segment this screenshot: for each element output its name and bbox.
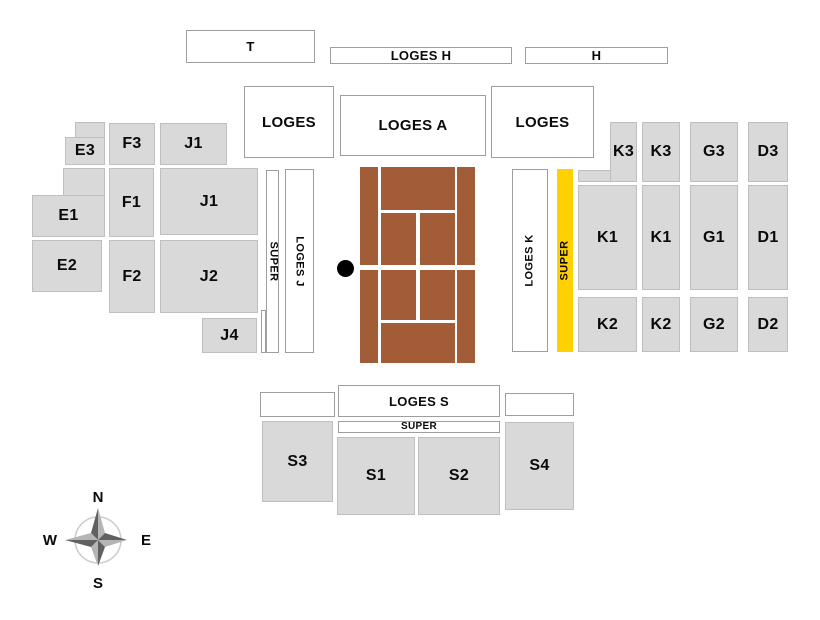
section-label: E3 xyxy=(75,143,95,159)
section-label: T xyxy=(246,40,254,53)
section-label: S2 xyxy=(449,468,469,484)
section-d3[interactable]: D3 xyxy=(748,122,788,182)
section-t[interactable]: T xyxy=(186,30,315,63)
section-j4[interactable]: J4 xyxy=(202,318,257,353)
section-e1[interactable] xyxy=(63,168,105,196)
section-label: LOGES xyxy=(515,115,569,130)
compass-east-label: E xyxy=(141,532,151,549)
stadium-seating-map: E3E1E2F3F1F2J1J1J2J4K3K3G3D3K1K1G1D1K2K2… xyxy=(0,0,820,620)
compass-rose: N S W E xyxy=(38,478,162,602)
section-k2-w[interactable]: K2 xyxy=(578,297,637,352)
section-d1[interactable]: D1 xyxy=(748,185,788,290)
court-surface-piece xyxy=(457,167,475,265)
section-s1[interactable]: S1 xyxy=(337,437,415,515)
section-label: S3 xyxy=(287,454,307,470)
court-surface-piece xyxy=(420,213,455,265)
section-k3-w[interactable]: K3 xyxy=(610,122,637,182)
court-surface-piece xyxy=(381,167,455,210)
section-label: G3 xyxy=(703,144,725,160)
section-s2[interactable]: S2 xyxy=(418,437,500,515)
section-f1[interactable]: F1 xyxy=(109,168,154,237)
section-label: J1 xyxy=(184,136,202,152)
section-label: LOGES H xyxy=(391,49,452,62)
section-label: J4 xyxy=(220,328,238,344)
section-label: E1 xyxy=(58,208,78,224)
section-label: K3 xyxy=(650,144,671,160)
section-label: LOGES A xyxy=(378,118,447,133)
section-label: H xyxy=(592,49,602,62)
section-loges-ne[interactable]: LOGES xyxy=(491,86,594,158)
section-label: G1 xyxy=(703,230,725,246)
section-loges-j[interactable]: LOGES J xyxy=(285,169,314,353)
section-box-sw[interactable] xyxy=(260,392,335,417)
section-label: K2 xyxy=(650,317,671,333)
compass-south-label: S xyxy=(93,575,103,592)
section-h[interactable]: H xyxy=(525,47,668,64)
section-j1-top[interactable]: J1 xyxy=(160,123,227,165)
section-label: K1 xyxy=(650,230,671,246)
section-label: SUPER xyxy=(267,242,278,282)
court-surface-piece xyxy=(420,270,455,320)
section-super-w[interactable]: SUPER xyxy=(266,170,279,353)
section-k1-e[interactable]: K1 xyxy=(642,185,680,290)
section-label: F3 xyxy=(122,136,141,152)
section-label: D1 xyxy=(757,230,778,246)
section-super-s[interactable]: SUPER xyxy=(338,421,500,433)
section-super-e[interactable]: SUPER xyxy=(557,169,573,352)
section-loges-h[interactable]: LOGES H xyxy=(330,47,512,64)
section-label: S4 xyxy=(529,458,549,474)
tennis-court xyxy=(360,167,475,364)
section-label: F1 xyxy=(122,195,141,211)
section-loges-k[interactable]: LOGES K xyxy=(512,169,548,352)
section-e3[interactable]: E3 xyxy=(65,137,105,165)
section-label: S1 xyxy=(366,468,386,484)
section-label: LOGES K xyxy=(525,234,536,286)
section-e1[interactable]: E1 xyxy=(32,195,105,237)
section-k3-w[interactable] xyxy=(578,170,611,182)
section-f3[interactable]: F3 xyxy=(109,123,155,165)
section-label: SUPER xyxy=(401,422,437,432)
compass-star xyxy=(65,508,127,566)
compass-west-label: W xyxy=(43,532,58,549)
section-label: LOGES J xyxy=(294,236,305,286)
section-box-se[interactable] xyxy=(505,393,574,416)
section-loges-nw[interactable]: LOGES xyxy=(244,86,334,158)
marker-dot xyxy=(337,260,354,277)
section-label: LOGES S xyxy=(389,395,449,408)
court-surface-piece xyxy=(360,167,378,265)
section-label: K2 xyxy=(597,317,618,333)
section-label: G2 xyxy=(703,317,725,333)
section-loges-a[interactable]: LOGES A xyxy=(340,95,486,156)
section-label: LOGES xyxy=(262,115,316,130)
court-surface-piece xyxy=(381,323,455,363)
section-label: J1 xyxy=(200,194,218,210)
section-j2[interactable]: J2 xyxy=(160,240,258,313)
section-label: K3 xyxy=(613,144,634,160)
section-g1[interactable]: G1 xyxy=(690,185,738,290)
compass-north-label: N xyxy=(93,489,104,506)
section-loges-s[interactable]: LOGES S xyxy=(338,385,500,417)
section-label: K1 xyxy=(597,230,618,246)
section-label: D3 xyxy=(757,144,778,160)
section-label: E2 xyxy=(57,258,77,274)
section-label: J2 xyxy=(200,269,218,285)
section-d2[interactable]: D2 xyxy=(748,297,788,352)
section-label: F2 xyxy=(122,269,141,285)
court-surface-piece xyxy=(457,270,475,363)
section-e2[interactable]: E2 xyxy=(32,240,102,292)
section-g2[interactable]: G2 xyxy=(690,297,738,352)
section-label: SUPER xyxy=(560,241,571,281)
section-e3[interactable] xyxy=(75,122,105,138)
section-k3-e[interactable]: K3 xyxy=(642,122,680,182)
section-j1[interactable]: J1 xyxy=(160,168,258,235)
section-g3[interactable]: G3 xyxy=(690,122,738,182)
section-f2[interactable]: F2 xyxy=(109,240,155,313)
section-super-w[interactable] xyxy=(261,310,266,353)
court-surface-piece xyxy=(381,213,416,265)
section-k2-e[interactable]: K2 xyxy=(642,297,680,352)
section-k1-w[interactable]: K1 xyxy=(578,185,637,290)
section-s4[interactable]: S4 xyxy=(505,422,574,510)
court-surface-piece xyxy=(360,270,378,363)
court-surface-piece xyxy=(381,270,416,320)
section-label: D2 xyxy=(757,317,778,333)
section-s3[interactable]: S3 xyxy=(262,421,333,502)
